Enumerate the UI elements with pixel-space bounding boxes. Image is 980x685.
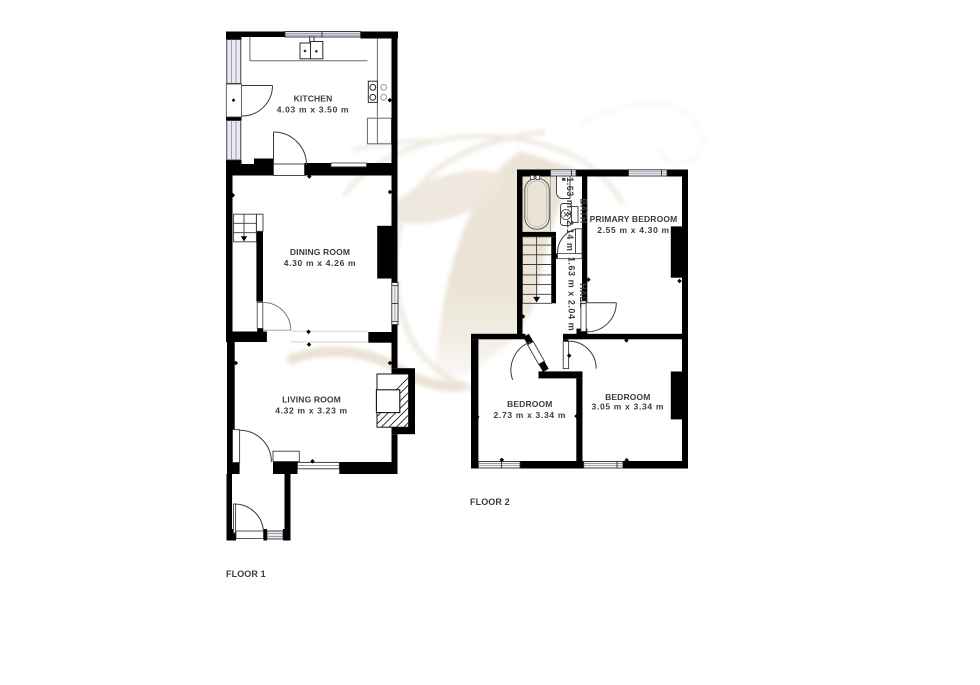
svg-text:BATH: BATH (579, 198, 589, 223)
svg-text:HALL: HALL (578, 283, 588, 308)
svg-text:BEDROOM: BEDROOM (507, 399, 552, 409)
svg-text:1.63 m x 2.04 m: 1.63 m x 2.04 m (567, 257, 577, 331)
svg-text:4.03 m x 3.50 m: 4.03 m x 3.50 m (277, 104, 350, 114)
svg-text:3.05 m x 3.34 m: 3.05 m x 3.34 m (592, 402, 665, 412)
svg-text:2.73 m x 3.34 m: 2.73 m x 3.34 m (494, 410, 567, 420)
svg-text:FLOOR 2: FLOOR 2 (470, 497, 510, 507)
svg-text:1.63 m x 2.14 m: 1.63 m x 2.14 m (565, 177, 575, 251)
svg-text:4.32 m x 3.23 m: 4.32 m x 3.23 m (275, 405, 348, 415)
svg-text:KITCHEN: KITCHEN (294, 93, 333, 103)
svg-text:4.30 m x 4.26 m: 4.30 m x 4.26 m (284, 258, 357, 268)
svg-text:2.55 m x 4.30 m: 2.55 m x 4.30 m (597, 225, 670, 235)
svg-text:BEDROOM: BEDROOM (605, 392, 650, 402)
svg-text:DINING ROOM: DINING ROOM (290, 247, 350, 257)
svg-text:PRIMARY BEDROOM: PRIMARY BEDROOM (590, 214, 678, 224)
svg-text:LIVING ROOM: LIVING ROOM (282, 394, 341, 404)
svg-text:FLOOR 1: FLOOR 1 (226, 569, 266, 579)
